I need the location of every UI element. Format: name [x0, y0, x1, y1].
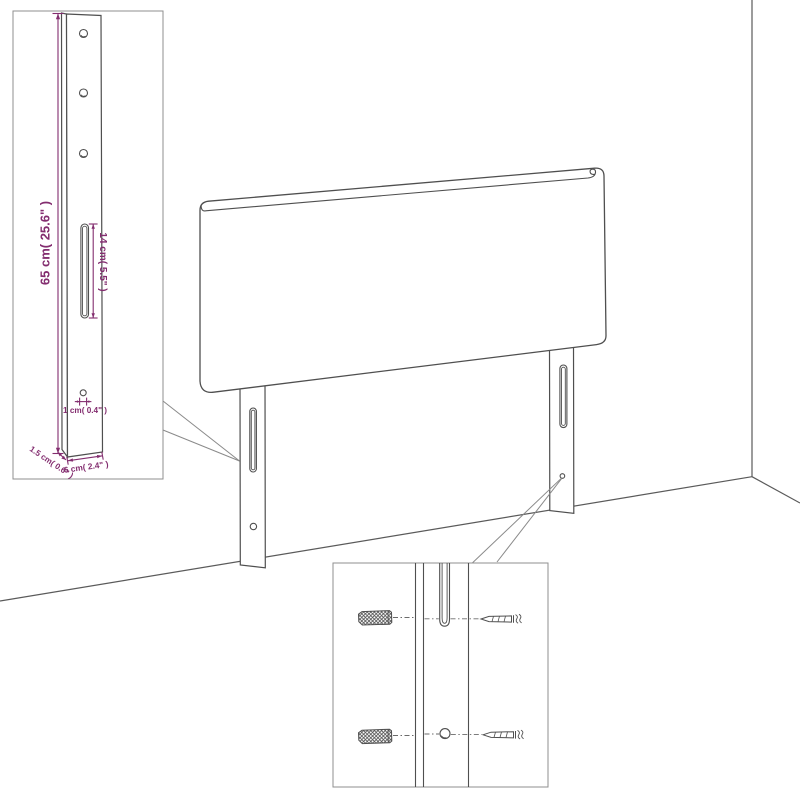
leg-detail-slot-inner — [83, 226, 87, 316]
leader-line-upper — [163, 401, 240, 461]
wall-plug-body — [359, 729, 392, 743]
wall-plug-icon-top — [359, 611, 392, 625]
headboard-panel-outline — [200, 168, 606, 392]
diagram-canvas: 65 cm( 25.6" ) 14 cm( 5.5" ) 1 cm( 0.4" … — [0, 0, 800, 800]
leg-detail-leaders — [163, 401, 240, 461]
leg-detail-hole-3 — [80, 150, 88, 158]
hole-diameter-label: 1 cm( 0.4" ) — [63, 406, 107, 415]
leg-height-label: 65 cm( 25.6" ) — [38, 201, 53, 285]
headboard-panel — [200, 168, 606, 392]
right-leg-hole — [560, 474, 565, 479]
mounting-inset-border — [333, 563, 548, 787]
leg-detail-inset: 65 cm( 25.6" ) 14 cm( 5.5" ) 1 cm( 0.4" … — [13, 11, 163, 480]
slot-length-label: 14 cm( 5.5" ) — [97, 232, 108, 291]
leg-detail-hole-2 — [80, 89, 88, 97]
wall-plug-body — [359, 611, 392, 625]
left-leg-body — [240, 379, 265, 568]
leader-line-hole-right — [497, 478, 562, 562]
leg-detail-drawing — [62, 13, 103, 457]
right-leg — [550, 342, 574, 513]
leg-detail-hole-1 — [80, 30, 88, 38]
left-leg — [240, 379, 265, 568]
leg-detail-bottom-hole — [80, 390, 86, 396]
mounting-detail-inset — [333, 563, 548, 787]
left-leg-slot-inner — [251, 410, 255, 470]
right-leg-slot-inner — [562, 367, 566, 425]
headboard-assembly-diagram: 65 cm( 25.6" ) 14 cm( 5.5" ) 1 cm( 0.4" … — [0, 0, 800, 800]
wall-plug-icon-bottom — [359, 729, 392, 743]
leader-line-lower — [163, 430, 240, 461]
left-leg-hole — [250, 523, 256, 529]
floor-line-right — [752, 477, 800, 503]
